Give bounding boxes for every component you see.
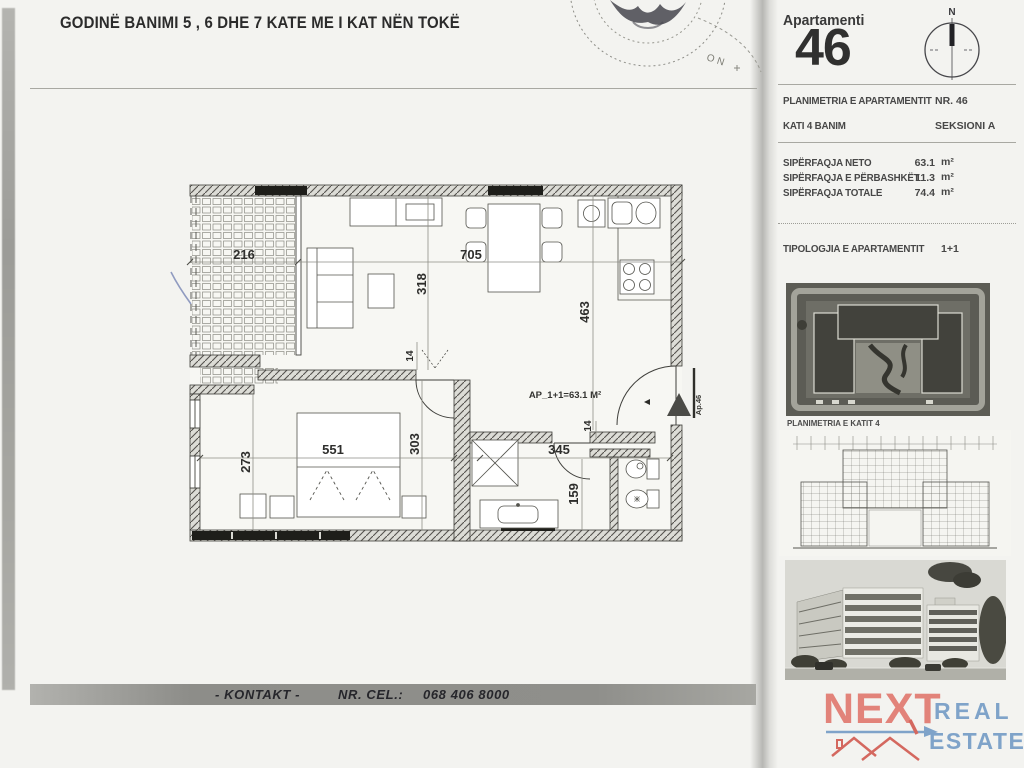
area-totale-value: 74.4 <box>880 187 935 199</box>
area-totale-unit: m² <box>941 186 954 198</box>
coffee-table <box>368 274 394 308</box>
area-perbashket-unit: m² <box>941 171 954 183</box>
contact-phone: 068 406 8000 <box>423 687 510 702</box>
dim-door-b: 14 <box>583 420 594 432</box>
plan-row-label: PLANIMETRIA E APARTAMENTIT <box>783 95 932 107</box>
typology-label: TIPOLOGJIA E APARTAMENTIT <box>783 243 924 255</box>
dim-bath-depth: 159 <box>566 483 581 505</box>
compass-north-label: N <box>948 7 955 18</box>
title-divider-line <box>30 88 757 89</box>
nightstand <box>270 496 294 518</box>
compass-icon: N <box>912 6 992 86</box>
bidet-back <box>647 490 659 508</box>
contact-cel-label: NR. CEL.: <box>338 687 403 702</box>
scan-edge-shadow <box>2 8 15 690</box>
plan-row-value: NR. 46 <box>935 95 968 107</box>
sidebar-divider <box>778 142 1016 143</box>
contact-kontakt-label: - KONTAKT - <box>215 687 300 702</box>
floor-plan-kati4-drawing <box>779 430 1011 556</box>
chair <box>542 242 562 262</box>
chair <box>542 208 562 228</box>
chair <box>466 208 486 228</box>
balcony-window-wall <box>296 196 301 355</box>
area-totale-label: SIPËRFAQJA TOTALE <box>783 187 882 199</box>
dim-balcony-width: 216 <box>233 247 255 262</box>
document-title: GODINË BANIMI 5 , 6 DHE 7 KATE ME I KAT … <box>60 13 460 33</box>
washing-machine <box>578 200 605 227</box>
floorplan-caption: PLANIMETRIA E KATIT 4 <box>787 418 880 428</box>
logo-real-text: REAL <box>934 700 1013 723</box>
contact-bar: - KONTAKT - NR. CEL.: 068 406 8000 <box>30 684 756 705</box>
dim-living-depth: 318 <box>414 273 429 295</box>
unit-marker-label: Ap.46 <box>694 395 703 415</box>
floor-row-label: KATI 4 BANIM <box>783 120 846 132</box>
area-neto-label: SIPËRFAQJA NETO <box>783 157 871 169</box>
sidebar-divider <box>778 84 1016 85</box>
bed <box>297 413 400 517</box>
dim-bedroom-width: 551 <box>322 442 344 457</box>
dim-bedroom-depth-left: 273 <box>238 451 253 473</box>
official-stamp-icon: ON <box>548 0 763 88</box>
dim-bedroom-depth-right: 303 <box>407 433 422 455</box>
stamp-partial-text: ON <box>705 52 728 69</box>
building-photo <box>785 560 1006 680</box>
typology-value: 1+1 <box>941 243 959 255</box>
pen-mark <box>171 272 191 304</box>
dim-door-a: 14 <box>405 350 416 362</box>
dim-living-width: 705 <box>460 247 482 262</box>
logo-roof-icon <box>824 730 934 768</box>
floor-row-value: SEKSIONI A <box>935 120 995 132</box>
dining-table <box>488 204 540 292</box>
scanned-floorplan-page: { "page": { "title": "GODINË BANIMI 5 , … <box>0 0 1024 768</box>
dim-bath-width: 345 <box>548 442 570 457</box>
site-plan-aerial-image <box>786 283 990 416</box>
sidebar-divider-dotted <box>778 223 1016 224</box>
toilet <box>626 460 646 478</box>
apartment-number: 46 <box>795 22 851 74</box>
area-neto-value: 63.1 <box>880 157 935 169</box>
apartment-area-label: AP_1+1=63.1 M² <box>529 390 601 401</box>
sofa <box>307 248 353 328</box>
area-neto-unit: m² <box>941 156 954 168</box>
toilet-tank <box>647 459 659 479</box>
page-fold-shadow <box>750 0 778 768</box>
dim-kitchen-depth: 463 <box>577 301 592 323</box>
area-perbashket-value: 11.3 <box>880 172 935 184</box>
floor-plan-drawing: Ap.46 216 705 551 345 318 463 273 303 15… <box>170 172 715 557</box>
